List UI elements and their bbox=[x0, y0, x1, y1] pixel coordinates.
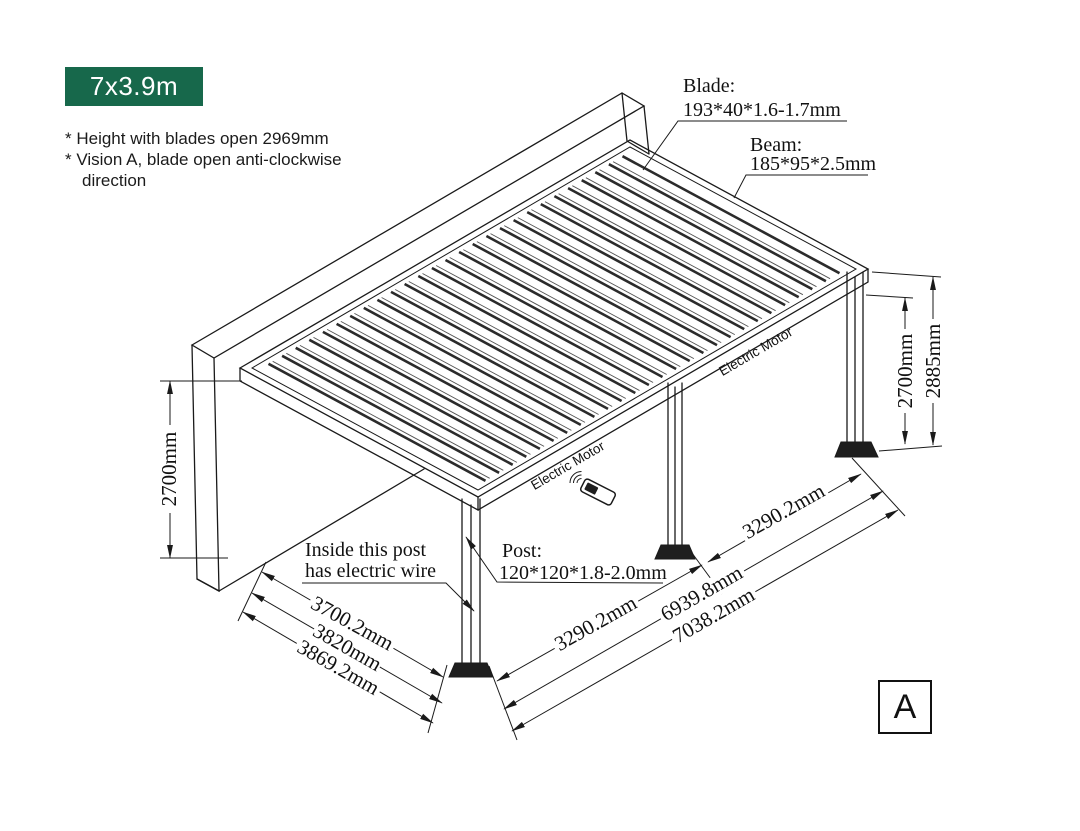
note-vision-cont: direction bbox=[65, 170, 342, 191]
dim-bay-rear: 3290.2mm bbox=[736, 477, 831, 545]
svg-text:2700mm: 2700mm bbox=[893, 334, 917, 409]
middle-post bbox=[655, 383, 695, 559]
svg-text:2700mm: 2700mm bbox=[157, 432, 181, 507]
signal-wave-icon bbox=[577, 479, 582, 484]
dim-wall-height: 2700mm bbox=[157, 425, 181, 513]
post-callout-spec: 120*120*1.8-2.0mm bbox=[499, 562, 667, 584]
pergola-spec-drawing: 2700mm 2700mm 2885mm 3700.2mm 3820mm 386… bbox=[0, 0, 1080, 831]
blade-callout-spec: 193*40*1.6-1.7mm bbox=[683, 99, 841, 121]
louver-blade bbox=[269, 364, 486, 481]
remote-control-icon bbox=[570, 472, 616, 506]
blade-callout-title: Blade: bbox=[683, 75, 735, 97]
louver-blade bbox=[296, 348, 513, 465]
svg-text:3290.2mm: 3290.2mm bbox=[738, 478, 829, 543]
view-label-box: A bbox=[878, 680, 932, 734]
dim-bay-front: 3290.2mm bbox=[548, 589, 643, 657]
drawing-notes: * Height with blades open 2969mm * Visio… bbox=[65, 128, 342, 191]
size-badge-label: 7x3.9m bbox=[90, 71, 178, 102]
roof-louvers bbox=[269, 156, 840, 481]
svg-text:2885mm: 2885mm bbox=[921, 324, 945, 399]
note-height: * Height with blades open 2969mm bbox=[65, 128, 342, 149]
post-callout-title: Post: bbox=[502, 540, 542, 562]
beam-callout-spec: 185*95*2.5mm bbox=[750, 153, 877, 175]
size-badge: 7x3.9m bbox=[65, 67, 203, 106]
electric-wire-note-line2: has electric wire bbox=[305, 560, 436, 582]
extension-lines bbox=[160, 272, 942, 740]
dim-post-height: 2700mm bbox=[893, 329, 917, 413]
louver-blade bbox=[282, 356, 499, 473]
post-callout: Post: 120*120*1.8-2.0mm bbox=[466, 537, 667, 584]
front-post bbox=[449, 499, 493, 677]
right-post bbox=[835, 272, 878, 457]
electric-wire-note-line1: Inside this post bbox=[305, 539, 427, 561]
note-vision: * Vision A, blade open anti-clockwise bbox=[65, 149, 342, 170]
beam-callout: Beam: 185*95*2.5mm bbox=[734, 134, 877, 198]
view-label: A bbox=[894, 688, 917, 727]
dim-total-height: 2885mm bbox=[921, 319, 945, 403]
svg-text:3290.2mm: 3290.2mm bbox=[550, 590, 641, 655]
